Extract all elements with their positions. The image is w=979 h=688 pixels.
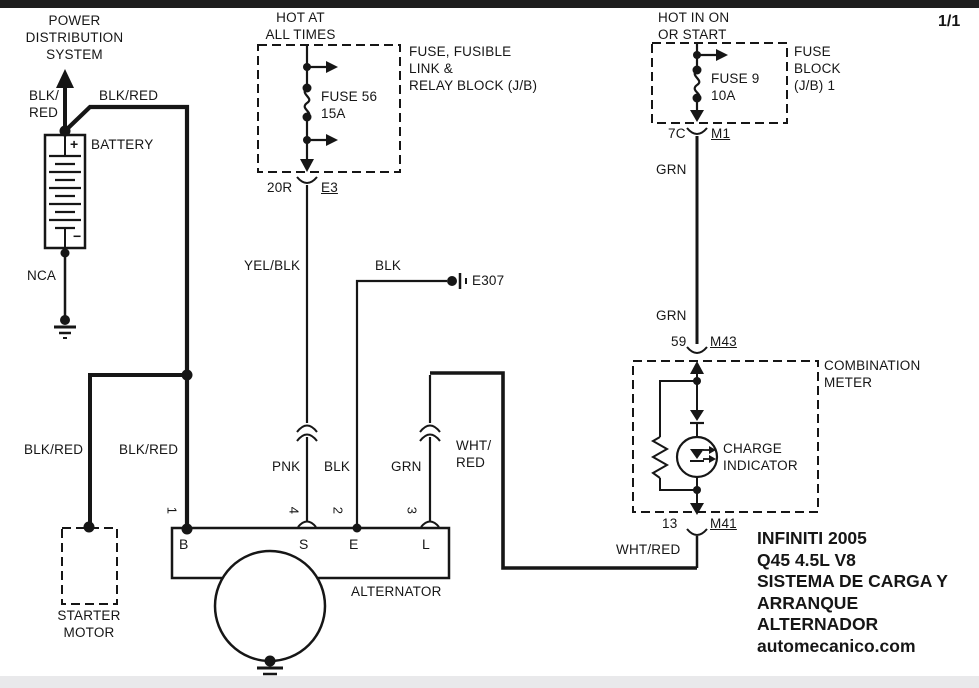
wire-label-blk-red-top: BLK/RED: [99, 87, 158, 104]
charge-indicator-label: CHARGE INDICATOR: [723, 440, 798, 474]
terminal-s-label: S: [299, 536, 309, 553]
battery-ground-wire: [60, 248, 70, 325]
wire-label-blk-red-left: BLK/ RED: [29, 87, 59, 121]
pin-4-label: 4: [286, 503, 303, 519]
fuse-relay-block-label: FUSE, FUSIBLE LINK & RELAY BLOCK (J/B): [409, 43, 537, 94]
fuse-block-jb1-label: FUSE BLOCK (J/B) 1: [794, 43, 841, 94]
wire-label-blk-top: BLK: [375, 257, 401, 274]
l-terminal-wire: [420, 375, 440, 527]
connector-m1-label: M1: [711, 125, 730, 142]
power-distribution-title: POWER DISTRIBUTION SYSTEM: [2, 12, 147, 63]
wire-label-grn-upper: GRN: [656, 161, 687, 178]
battery-minus-sign: −: [73, 228, 81, 245]
connector-m41-label: M41: [710, 515, 737, 532]
pin-3-label: 3: [404, 503, 421, 519]
alternator-label: ALTERNATOR: [351, 583, 442, 600]
pin-2-label: 2: [330, 503, 347, 519]
nca-label: NCA: [27, 267, 56, 284]
wiring-diagram-page: POWER DISTRIBUTION SYSTEM BLK/ RED BLK/R…: [0, 0, 979, 688]
connector-e3-label: E3: [321, 179, 338, 196]
ground-icon: [54, 327, 76, 338]
connector-m43-label: M43: [710, 333, 737, 350]
connector-m43-icon: [687, 347, 707, 353]
wire-label-grn-lower: GRN: [656, 307, 687, 324]
bottom-strip: [0, 676, 979, 688]
pin-1-label: 1: [164, 503, 181, 519]
wire-label-blk-red-starter: BLK/RED: [24, 441, 83, 458]
wire-label-blk-red-alt: BLK/RED: [119, 441, 178, 458]
ground-e307-icon: [447, 273, 466, 289]
starter-motor-box: [62, 528, 117, 604]
terminal-e-label: E: [349, 536, 359, 553]
hot-in-on-label: HOT IN ON OR START: [658, 9, 729, 43]
wire-label-grn-alt: GRN: [391, 458, 422, 475]
vehicle-info-block: INFINITI 2005 Q45 4.5L V8 SISTEMA DE CAR…: [757, 528, 948, 657]
connector-m41-icon: [687, 529, 707, 568]
wire-label-wht-red-bottom: WHT/RED: [616, 541, 680, 558]
connector-e3-icon: [297, 177, 317, 183]
ground-e307-label: E307: [472, 272, 504, 289]
e-terminal-wire: [353, 281, 448, 533]
s-terminal-wire: [297, 185, 317, 527]
fuse-56-label: FUSE 56 15A: [321, 88, 377, 122]
wire-label-pnk: PNK: [272, 458, 300, 475]
terminal-l-label: L: [422, 536, 430, 553]
pin-7c-label: 7C: [668, 125, 686, 142]
fuse-9-label: FUSE 9 10A: [711, 70, 759, 104]
page-number: 1/1: [938, 13, 960, 30]
wire-label-wht-red-vertical: WHT/ RED: [456, 437, 491, 471]
charge-indicator-circuit: [653, 361, 717, 515]
combination-meter-label: COMBINATION METER: [824, 357, 920, 391]
connector-m1-icon: [687, 128, 707, 134]
terminal-b-label: B: [179, 536, 189, 553]
pin-20r-label: 20R: [267, 179, 292, 196]
pin-13-label: 13: [662, 515, 677, 532]
wire-label-blk-mid: BLK: [324, 458, 350, 475]
battery-plus-sign: +: [70, 136, 78, 153]
hot-at-all-times-label: HOT AT ALL TIMES: [253, 9, 348, 43]
battery-label: BATTERY: [91, 136, 153, 153]
wire-label-yel-blk: YEL/BLK: [244, 257, 300, 274]
starter-motor-label: STARTER MOTOR: [38, 607, 140, 641]
pin-59-label: 59: [671, 333, 686, 350]
